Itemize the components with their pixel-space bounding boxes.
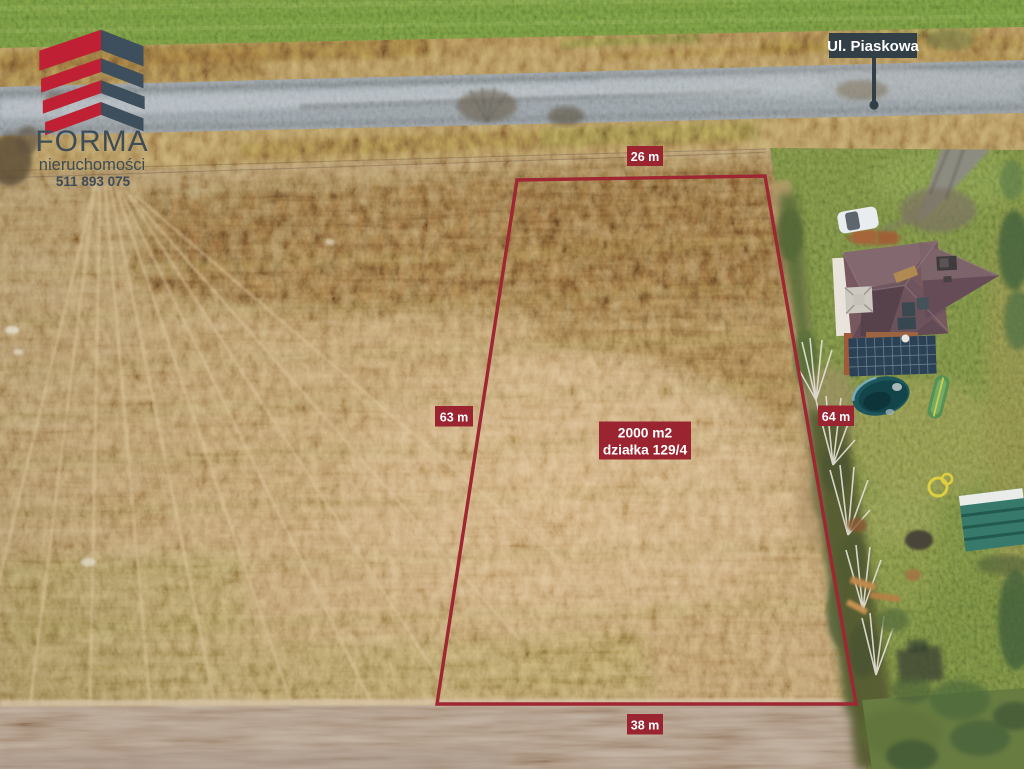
svg-text:26 m: 26 m [631,150,660,164]
svg-text:64 m: 64 m [822,410,851,424]
svg-text:511 893 075: 511 893 075 [56,174,131,189]
svg-text:FORMA: FORMA [35,125,148,158]
svg-text:2000 m2: 2000 m2 [618,426,673,441]
svg-text:działka 129/4: działka 129/4 [603,443,688,458]
svg-text:38 m: 38 m [631,719,660,733]
svg-text:nieruchomości: nieruchomości [39,156,145,174]
svg-text:63 m: 63 m [440,411,469,425]
svg-text:Ul. Piaskowa: Ul. Piaskowa [827,38,919,55]
